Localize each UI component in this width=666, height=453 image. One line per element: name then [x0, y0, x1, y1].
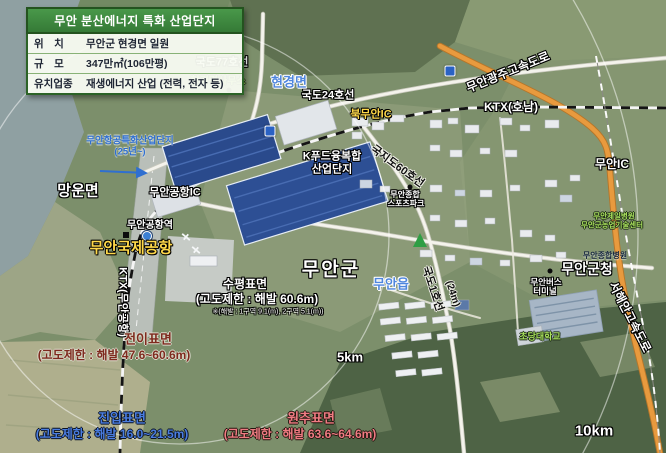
label-kfood-line1: K푸드융복합 [303, 152, 362, 163]
label-bukmuan-ic: 북무안IC [350, 110, 391, 121]
label-muan-eup: 무안읍 [373, 278, 409, 291]
row-label: 규 모 [34, 56, 86, 71]
label-transition-limit: (고도제한 : 해발 47.6~60.6m) [38, 349, 191, 361]
label-agri-center: 무안군농업기술센터 [581, 221, 643, 229]
row-value: 재생에너지 산업 (전력, 전자 등) [86, 76, 224, 91]
label-muan-gun: 무안군 [302, 261, 360, 280]
table-row: 규 모 347만㎡(106만평) [28, 53, 242, 73]
label-ktx-honam: KTX(호남) [484, 101, 538, 113]
info-table-title: 무안 분산에너지 특화 산업단지 [26, 7, 244, 34]
table-row: 유치업종 재생에너지 산업 (전력, 전자 등) [28, 73, 242, 93]
row-value: 347만㎡(106만평) [86, 56, 168, 71]
park-triangle-icon [413, 233, 427, 247]
row-label: 위 치 [34, 36, 86, 51]
road-shield-icon [445, 66, 456, 77]
label-muan-airport: 무안국제공항 [90, 241, 173, 256]
label-sports-park-line2: 스포츠파크 [388, 200, 425, 208]
label-muan-ic: 무안IC [595, 158, 629, 170]
label-kfood-line2: 산업단지 [312, 165, 352, 176]
label-ktx-airport: KTX(무안공항) [117, 267, 128, 337]
label-muan-airport-ic: 무안공항IC [149, 188, 200, 199]
label-transition-surface: 전이표면 [124, 333, 172, 346]
label-gukdo24: 국도24호선 [302, 91, 355, 102]
poi-dot-icon [408, 185, 413, 190]
label-aero-complex-line1: 무안항공특화산업단지 [86, 136, 173, 146]
poi-dot-icon [548, 269, 553, 274]
label-hyeongyeong-myeon: 현경면 [271, 76, 307, 89]
label-hospital: 무안종합병원 [583, 252, 627, 260]
label-horizontal-surface: 수평표면 [223, 278, 267, 290]
label-horizontal-note: ※(해발 : 1구역 9.1(m), 2구역 5.1(m)) [212, 309, 323, 316]
label-airport-station: 무안공항역 [127, 221, 173, 231]
label-horizontal-limit: (고도제한 : 해발 60.6m) [196, 293, 318, 305]
row-value: 무안군 현경면 일원 [86, 36, 169, 51]
label-approach-limit: (고도제한 : 해발 16.0~21.5m) [36, 428, 189, 440]
map-screenshot: 국도77호선 국도24호선 북무안IC 무안광주고속도로 KTX(호남) 무안I… [0, 0, 666, 453]
label-conical-surface: 원추표면 [287, 412, 335, 425]
label-muan-office: 무안군청 [561, 262, 613, 276]
label-aero-complex-line2: (25년~) [114, 147, 145, 157]
road-shield-icon [265, 126, 276, 137]
label-mangun-myeon: 망운면 [57, 184, 98, 199]
label-chodang-univ: 초당대학교 [519, 333, 560, 342]
label-approach-surface: 진입표면 [98, 412, 146, 425]
label-ring-10km: 10km [575, 424, 613, 439]
label-clinic: 무안제일병원 [593, 212, 634, 220]
row-label: 유치업종 [34, 76, 86, 91]
station-square-icon [123, 232, 129, 238]
label-bus-terminal-line2: 터미널 [533, 287, 556, 296]
label-sports-park-line1: 무안종합 [390, 191, 419, 199]
table-row: 위 치 무안군 현경면 일원 [28, 34, 242, 53]
label-conical-limit: (고도제한 : 해발 63.6~64.6m) [224, 428, 377, 440]
label-ring-5km: 5km [337, 351, 363, 364]
info-table: 무안 분산에너지 특화 산업단지 위 치 무안군 현경면 일원 규 모 347만… [26, 7, 244, 95]
